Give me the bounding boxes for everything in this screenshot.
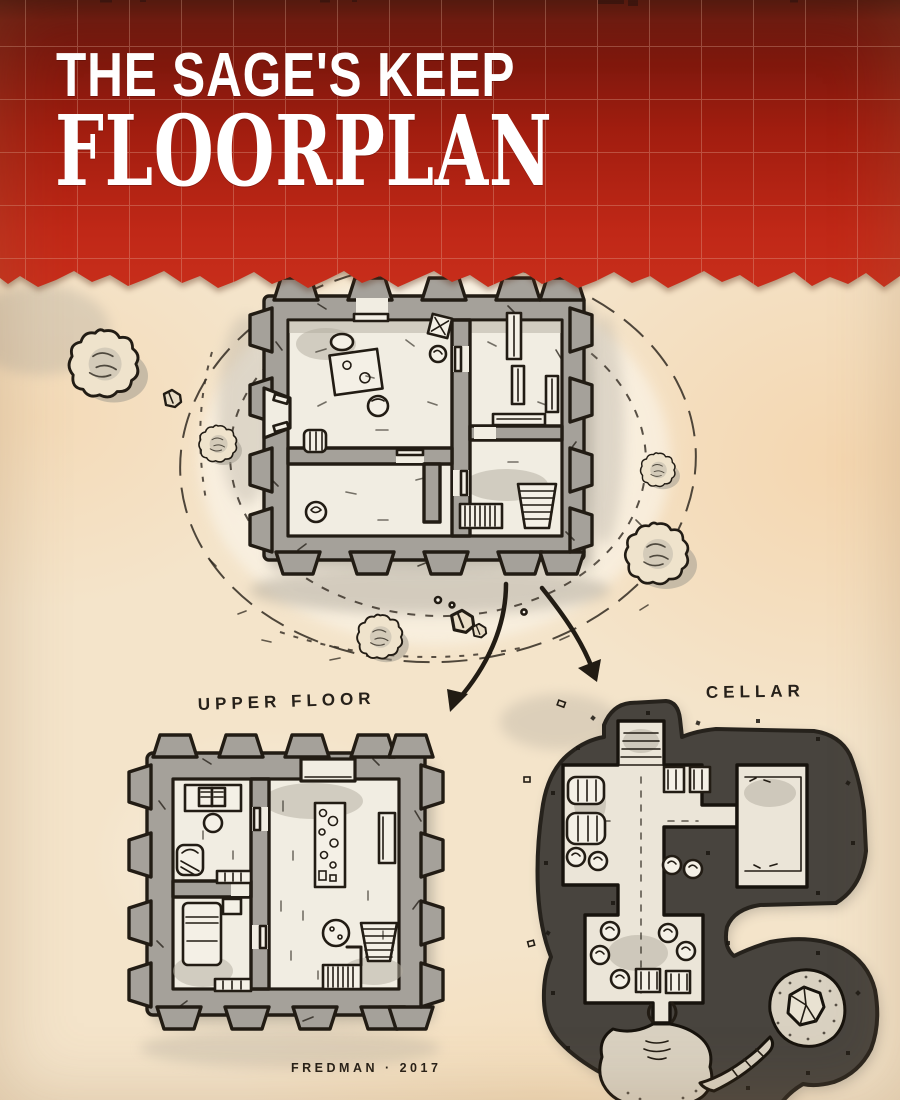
crate — [690, 767, 710, 792]
upper-floor-label: UPPER FLOOR — [197, 689, 375, 714]
bush — [69, 330, 148, 403]
bush — [625, 523, 697, 589]
crate — [664, 767, 684, 792]
boulder-cave — [770, 970, 845, 1047]
pebble — [435, 597, 441, 603]
bottom-cave — [600, 1024, 712, 1100]
shelf — [217, 871, 251, 883]
boulder — [788, 987, 824, 1025]
stool — [204, 814, 222, 832]
stairs-up — [518, 484, 556, 528]
poster-page: { "header": { "kicker": "THE SAGE'S KEEP… — [0, 0, 900, 1100]
crate — [428, 314, 452, 338]
poster-title: FLOORPLAN — [55, 94, 553, 208]
bed — [183, 903, 221, 965]
barrel — [568, 777, 604, 804]
wall-bench — [379, 813, 395, 863]
chair — [331, 334, 353, 350]
ground-floor-plan — [250, 278, 592, 574]
top-door — [354, 314, 388, 321]
dining-table — [329, 349, 382, 395]
stairs-down — [460, 504, 502, 528]
round-rug — [323, 920, 349, 946]
pebble — [450, 603, 455, 608]
pebble — [524, 777, 530, 782]
rock — [164, 390, 181, 407]
armchair — [177, 845, 203, 875]
upper-floor-plan — [129, 735, 443, 1029]
barrel — [567, 813, 605, 844]
crate — [666, 971, 690, 993]
study-desk — [185, 785, 241, 811]
nightstand — [223, 899, 241, 914]
shelf — [215, 979, 251, 991]
stairs-up — [361, 923, 397, 961]
crate — [636, 969, 660, 992]
window-alcove — [301, 759, 355, 781]
pebble — [528, 940, 535, 946]
cellar-plan — [524, 700, 880, 1100]
laboratory-table — [315, 803, 345, 887]
barrel — [304, 430, 326, 452]
artist-signature: FREDMAN · 2017 — [291, 1061, 441, 1075]
pebble — [521, 609, 526, 614]
cellar-label: CELLAR — [706, 681, 805, 702]
pot — [430, 346, 446, 362]
entrance — [264, 388, 290, 438]
